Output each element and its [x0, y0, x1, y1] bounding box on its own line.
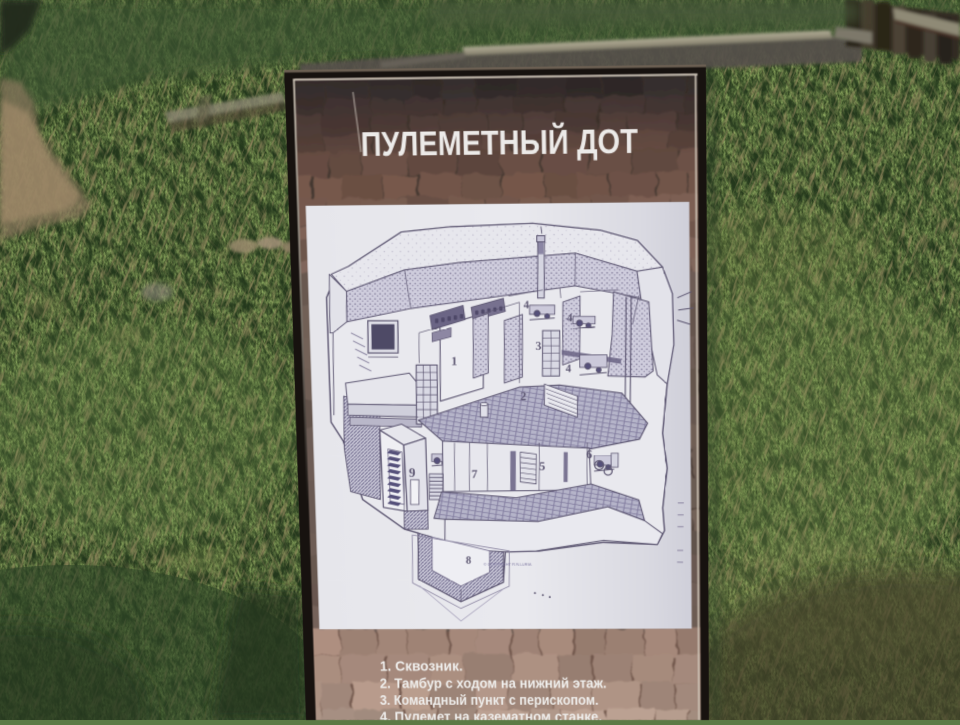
svg-text:2: 2	[520, 389, 526, 403]
svg-text:© COPYRIGHT R.N.LURIA: © COPYRIGHT R.N.LURIA	[484, 562, 532, 567]
svg-text:8: 8	[466, 555, 472, 566]
svg-text:1. Сквозник.: 1. Сквозник.	[380, 660, 463, 675]
svg-text:2. Тамбур с ходом на нижний эт: 2. Тамбур с ходом на нижний этаж.	[380, 676, 607, 691]
svg-text:4. Пулемет на казематном станк: 4. Пулемет на казематном станке.	[380, 710, 603, 720]
svg-text:3. Командный пункт с перископо: 3. Командный пункт с перископом.	[380, 694, 599, 709]
svg-text:5: 5	[539, 459, 545, 473]
svg-text:3: 3	[536, 339, 542, 353]
svg-text:9: 9	[409, 465, 416, 479]
svg-text:4: 4	[524, 299, 530, 311]
svg-text:4: 4	[566, 363, 572, 375]
svg-text:ПУЛЕМЕТНЫЙ ДОТ: ПУЛЕМЕТНЫЙ ДОТ	[360, 121, 638, 164]
svg-text:7: 7	[471, 467, 477, 480]
svg-text:1: 1	[451, 354, 457, 368]
svg-text:4: 4	[567, 313, 573, 325]
svg-text:6: 6	[586, 448, 592, 462]
